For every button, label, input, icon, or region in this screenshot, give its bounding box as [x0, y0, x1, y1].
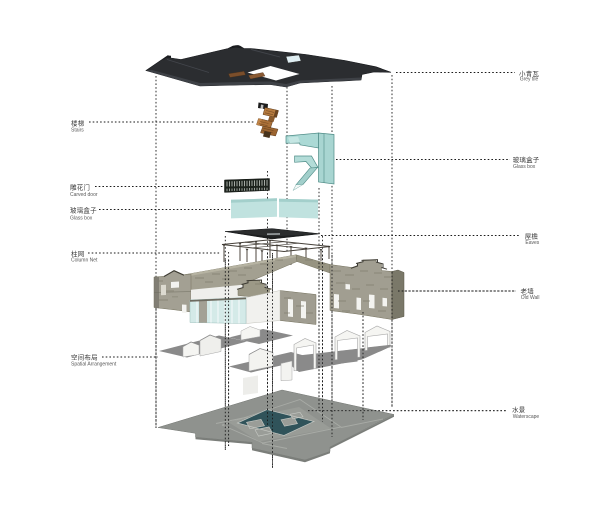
- svg-text:Waterscape: Waterscape: [513, 414, 540, 420]
- svg-text:Carved door: Carved door: [70, 192, 98, 198]
- svg-text:雕花门: 雕花门: [70, 183, 90, 192]
- svg-text:水景: 水景: [512, 405, 526, 414]
- svg-text:Column Net: Column Net: [71, 258, 98, 264]
- svg-text:Eaves: Eaves: [525, 240, 539, 246]
- svg-text:玻璃盒子: 玻璃盒子: [70, 206, 97, 215]
- svg-text:Spatial Arrangement: Spatial Arrangement: [71, 362, 117, 368]
- svg-text:空间布局: 空间布局: [71, 353, 98, 362]
- svg-text:Glass box: Glass box: [513, 164, 536, 170]
- svg-text:Stairs: Stairs: [71, 128, 84, 134]
- svg-text:Glass box: Glass box: [70, 216, 93, 222]
- svg-text:楼梯: 楼梯: [71, 119, 85, 128]
- svg-text:Grey tile: Grey tile: [520, 77, 539, 83]
- svg-text:Old Wall: Old Wall: [521, 295, 540, 301]
- svg-text:玻璃盒子: 玻璃盒子: [513, 155, 540, 164]
